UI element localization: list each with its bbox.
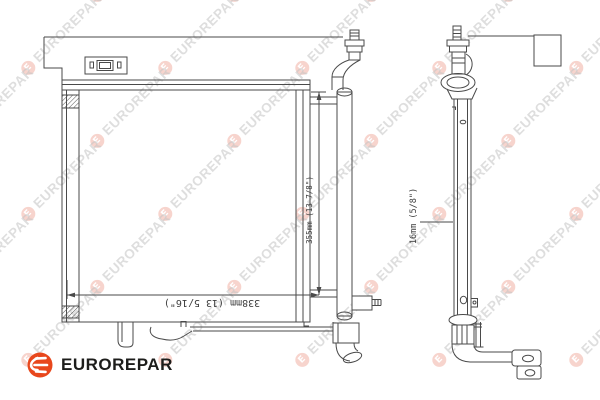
eurorepar-e-icon [27,352,53,378]
depth-dimension: 16mm (5/8") [409,188,453,244]
revision-box [534,35,561,66]
inlet-fitting [332,30,364,90]
side-view-top-stud [447,26,472,75]
drier-outlet-fitting [352,296,381,310]
condenser-side-view: 16mm (5/8") [409,26,541,379]
bottom-clip [150,322,192,341]
width-dimension: 338mm (13 5/16") [67,280,319,308]
side-view-mounting-ring [441,74,477,100]
left-tank-bottom-hatch [62,306,79,318]
height-dimension: 355mm (13 7/8") [305,92,326,295]
side-view-tube [452,99,478,318]
part-technical-drawing-page: EEUROREPAREEUROREPAREEUROREPAREEUROREPAR… [0,0,600,400]
condenser-core-outline [62,80,310,322]
top-mounting-bracket [85,57,127,74]
brand-logo: EUROREPAR [27,352,173,378]
bottom-outlet-pipe [333,323,363,365]
condenser-front-view: 355mm (13 7/8") 338mm (13 5/16") [44,30,381,365]
left-tank-top-hatch [62,95,79,108]
side-view-bottom-elbow [449,315,541,380]
brand-logo-text: EUROREPAR [61,355,173,375]
depth-dimension-label: 16mm (5/8") [409,188,419,244]
bottom-rail [190,322,333,331]
width-dimension-label: 338mm (13 5/16") [164,297,260,308]
condenser-technical-drawing: 355mm (13 7/8") 338mm (13 5/16") [0,0,600,400]
height-dimension-label: 355mm (13 7/8") [305,176,314,244]
bottom-mounting-bracket [118,322,133,347]
receiver-drier [310,88,352,320]
